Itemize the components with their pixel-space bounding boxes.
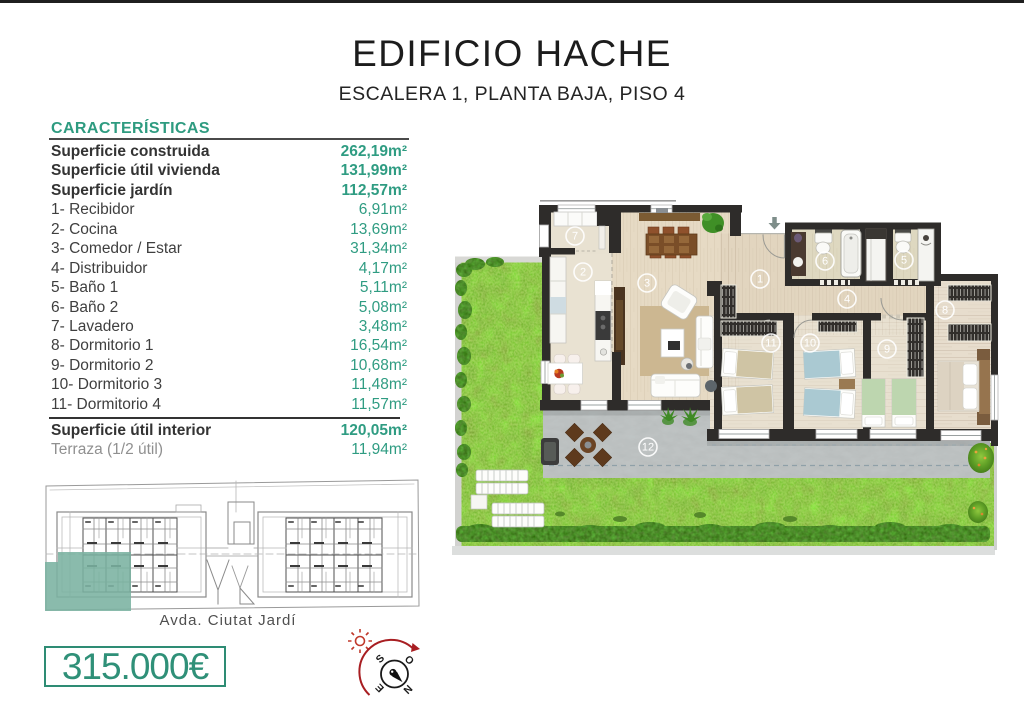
svg-text:2: 2 [580,267,586,279]
svg-text:7: 7 [572,231,578,243]
svg-text:11: 11 [765,338,776,350]
svg-text:6: 6 [822,256,828,268]
svg-text:3: 3 [644,278,650,290]
svg-text:1: 1 [757,274,763,286]
svg-text:5: 5 [901,255,907,267]
svg-text:4: 4 [844,294,850,306]
svg-text:8: 8 [942,305,948,317]
svg-text:12: 12 [642,442,654,454]
svg-text:10: 10 [804,338,816,350]
svg-text:9: 9 [884,344,890,356]
